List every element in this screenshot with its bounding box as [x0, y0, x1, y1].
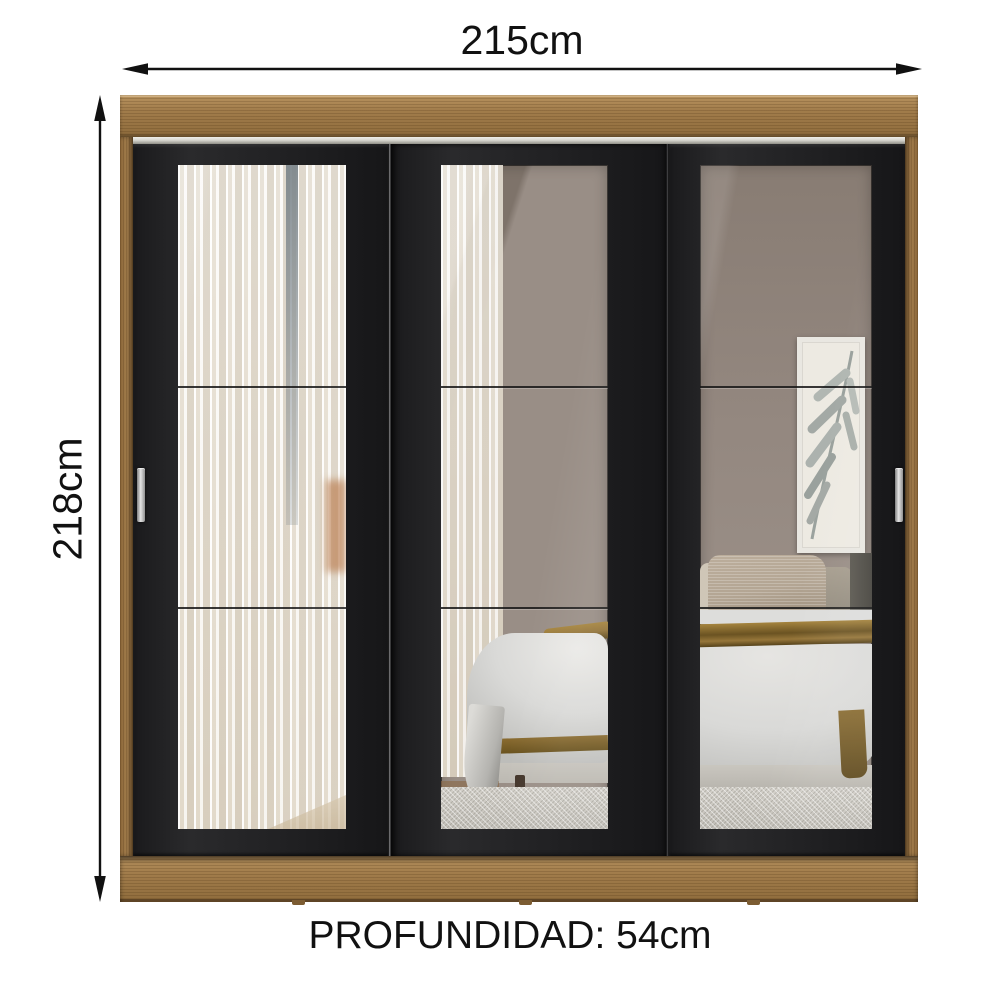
window-view-reflection — [326, 480, 346, 572]
mirror-seam — [178, 607, 346, 609]
wardrobe-top-panel — [120, 95, 918, 137]
height-dimension-label: 218cm — [48, 437, 89, 560]
sliding-door-left — [133, 144, 389, 856]
depth-dimension-label: PROFUNDIDAD: 54cm — [20, 916, 1000, 955]
door-gap — [666, 144, 669, 856]
window-frame-reflection — [286, 165, 298, 525]
width-dimension-label: 215cm — [122, 20, 922, 61]
wardrobe-foot — [292, 900, 305, 905]
wardrobe-right-panel — [905, 137, 918, 856]
wardrobe-base-panel — [120, 856, 918, 902]
mirror-seam — [441, 607, 608, 609]
headboard-reflection — [850, 553, 872, 611]
middle-door-mirror — [441, 165, 608, 829]
door-handle-right — [895, 468, 903, 522]
curtain-reflection — [178, 165, 346, 829]
leaf-art-icon — [802, 342, 860, 548]
sliding-door-middle — [391, 144, 669, 856]
carpet-reflection — [441, 787, 608, 829]
wardrobe-foot — [519, 900, 532, 905]
mirror-seam — [178, 386, 346, 388]
sliding-door-right — [669, 144, 905, 856]
wardrobe-left-panel — [120, 137, 133, 856]
sliding-door-rail — [120, 137, 918, 144]
wardrobe — [120, 95, 918, 902]
door-gap — [388, 144, 391, 856]
mirror-seam — [700, 607, 872, 609]
blanket-reflection — [700, 620, 872, 648]
carpet-reflection — [700, 787, 872, 829]
right-door-mirror — [700, 165, 872, 829]
width-dimension-arrow — [122, 59, 922, 79]
product-dimension-image: 215cm 218cm — [0, 0, 1000, 1000]
left-door-mirror — [178, 165, 346, 829]
blanket-reflection — [838, 709, 868, 778]
mirror-seam — [441, 386, 608, 388]
wardrobe-foot — [747, 900, 760, 905]
mirror-seam — [700, 386, 872, 388]
height-dimension-label-wrap: 218cm — [26, 95, 110, 902]
door-handle-left — [137, 468, 145, 522]
wall-art-reflection — [797, 337, 865, 553]
